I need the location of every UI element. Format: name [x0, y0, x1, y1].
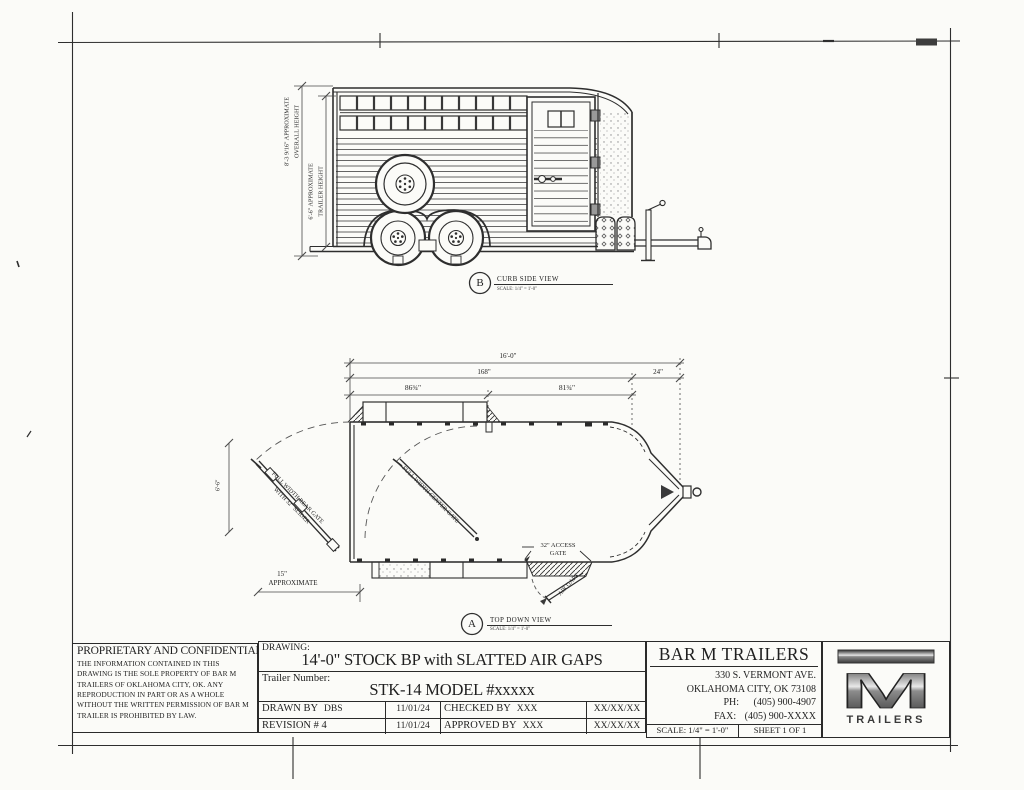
drawing-title: 14'-0" STOCK BP with SLATTED AIR GAPS: [259, 650, 645, 670]
company-fax: FAX: (405) 900-XXXX: [647, 710, 821, 724]
trailer-height-dim-line2: TRAILER HEIGHT: [319, 131, 326, 251]
logo-word: TRAILERS: [823, 714, 949, 726]
company-address1: 330 S. VERMONT AVE.: [647, 669, 821, 683]
width-dim: 6'-6": [216, 445, 223, 525]
rear-clearance-dim-line2: APPROXIMATE: [243, 580, 343, 588]
approved-date-cell: XX/XX/XX: [586, 718, 647, 734]
sheet-note: SHEET 1 OF 1: [739, 725, 821, 737]
signoff-grid: DRAWN BYDBS 11/01/24 CHECKED BYXXX XX/XX…: [259, 702, 645, 734]
company-address2: OKLAHOMA CITY, OK 73108: [647, 683, 821, 697]
drawing-info-block: DRAWING: 14'-0" STOCK BP with SLATTED AI…: [258, 641, 646, 733]
approved-by-label: APPROVED BY: [444, 720, 517, 731]
drawn-by-cell: DRAWN BYDBS: [259, 702, 385, 718]
access-gate-label-line2: GATE: [520, 550, 596, 557]
drawn-by-label: DRAWN BY: [262, 703, 318, 714]
side-view-title: CURB SIDE VIEW: [497, 276, 559, 284]
drawn-by-value: DBS: [324, 704, 342, 714]
logo-monogram: M: [840, 663, 932, 712]
drawn-date-cell: 11/01/24: [385, 702, 440, 718]
overall-height-dim-line2: OVERALL HEIGHT: [295, 66, 302, 196]
overall-length-dim: 16'-0": [478, 353, 538, 361]
company-logo: M TRAILERS: [822, 641, 950, 738]
overall-height-dim-line1: 8'-3 9/16" APPROXIMATE: [285, 66, 292, 196]
rear-compartment-dim: 81¾": [539, 384, 595, 392]
checked-by-value: XXX: [517, 704, 538, 714]
logo-m-graphic: M: [824, 642, 948, 712]
company-name: BAR M TRAILERS: [647, 642, 821, 665]
trailer-number-value: STK-14 MODEL #xxxxx: [259, 680, 645, 700]
tongue-length-dim: 24": [634, 369, 682, 377]
approved-by-value: XXX: [523, 721, 544, 731]
proprietary-notice: PROPRIETARY AND CONFIDENTIAL THE INFORMA…: [72, 643, 258, 733]
checked-by-label: CHECKED BY: [444, 703, 511, 714]
fax-value: (405) 900-XXXX: [745, 711, 816, 722]
front-compartment-dim: 86¾": [385, 384, 441, 392]
approved-by-cell: APPROVED BYXXX: [440, 718, 586, 734]
company-info-block: BAR M TRAILERS 330 S. VERMONT AVE. OKLAH…: [646, 641, 822, 738]
scale-note: SCALE: 1/4" = 1'-0": [647, 725, 739, 737]
access-gate-label-line1: 32" ACCESS: [520, 542, 596, 549]
revision-date-cell: 11/01/24: [385, 718, 440, 734]
phone-label: PH:: [723, 697, 739, 708]
checked-by-cell: CHECKED BYXXX: [440, 702, 586, 718]
box-length-dim: 168": [460, 369, 508, 377]
trailer-number-cell: Trailer Number: STK-14 MODEL #xxxxx: [259, 672, 645, 702]
side-view-letter: B: [473, 277, 487, 289]
top-view-letter: A: [465, 618, 479, 630]
blueprint-page: 8'-3 9/16" APPROXIMATE OVERALL HEIGHT 6'…: [0, 0, 1024, 790]
checked-date-cell: XX/XX/XX: [586, 702, 647, 718]
top-view-scale: SCALE: 1/4" = 1'-0": [490, 627, 530, 632]
drawing-title-cell: DRAWING: 14'-0" STOCK BP with SLATTED AI…: [259, 642, 645, 672]
fax-label: FAX:: [714, 711, 736, 722]
divider: [650, 666, 818, 667]
rear-clearance-dim-line1: 15": [262, 571, 302, 579]
side-view-scale: SCALE: 1/4" = 1'-0": [497, 287, 537, 292]
title-block: PROPRIETARY AND CONFIDENTIAL THE INFORMA…: [72, 641, 950, 738]
proprietary-heading: PROPRIETARY AND CONFIDENTIAL: [77, 645, 253, 657]
revision-cell: REVISION # 4: [259, 718, 385, 734]
trailer-height-dim-line1: 6'-6" APPROXIMATE: [309, 131, 316, 251]
top-view-title: TOP DOWN VIEW: [490, 617, 551, 625]
company-phone: PH: (405) 900-4907: [647, 696, 821, 710]
phone-value: (405) 900-4907: [754, 697, 817, 708]
scale-sheet-row: SCALE: 1/4" = 1'-0" SHEET 1 OF 1: [647, 724, 821, 737]
proprietary-body: THE INFORMATION CONTAINED IN THIS DRAWIN…: [77, 659, 253, 721]
